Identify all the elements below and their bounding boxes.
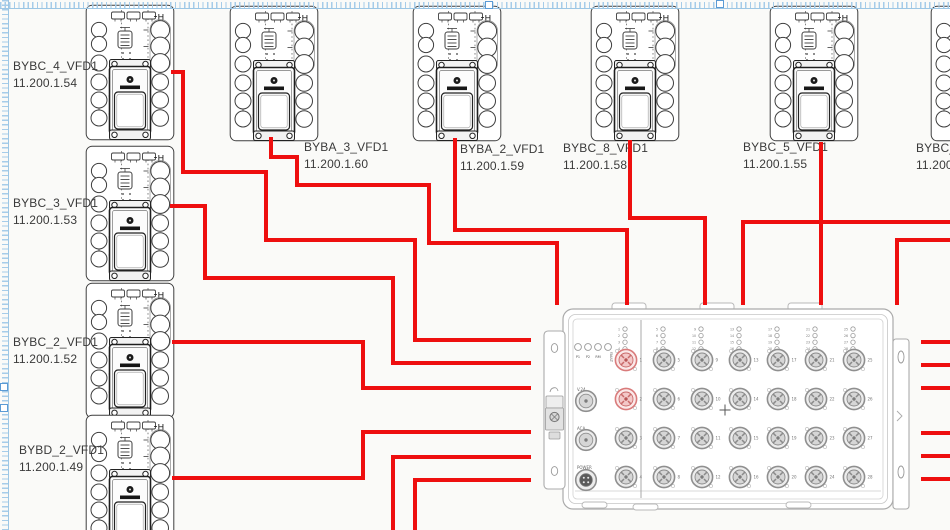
cable-byba2-to-switch[interactable]	[455, 138, 627, 305]
cable-bottom-feed-2[interactable]	[415, 480, 531, 530]
guide-handle[interactable]	[0, 383, 8, 391]
diagram-canvas[interactable]: P1P2RMFAULTV.24ACAPOWER12341234567856789…	[0, 0, 950, 530]
page-guide-vertical	[2, 0, 9, 530]
cable-bybc4-to-switch[interactable]	[171, 72, 531, 340]
guide-handle[interactable]	[716, 0, 724, 8]
cable-bybc8-to-switch[interactable]	[630, 140, 705, 305]
cable-right-feed-2[interactable]	[897, 240, 950, 305]
cable-right-feed-1[interactable]	[743, 222, 950, 305]
guide-handle[interactable]	[485, 1, 493, 9]
guide-handle[interactable]	[0, 404, 8, 412]
wire-layer	[0, 0, 950, 530]
page-guide-horizontal	[0, 2, 950, 9]
